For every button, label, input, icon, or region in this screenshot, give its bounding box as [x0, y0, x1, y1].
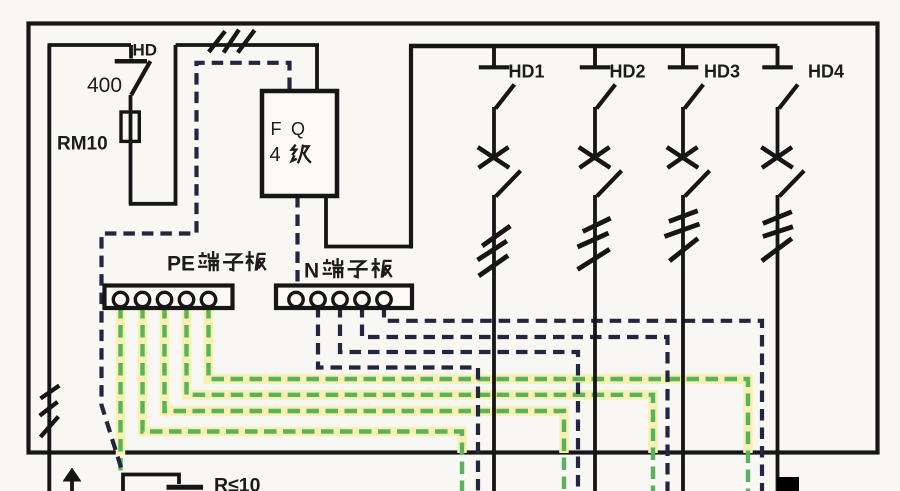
- svg-text:Q: Q: [291, 119, 305, 139]
- svg-text:4: 4: [270, 144, 281, 166]
- svg-text:400: 400: [87, 74, 122, 97]
- svg-text:HD1: HD1: [509, 61, 545, 81]
- svg-text:F: F: [271, 119, 282, 139]
- svg-text:R≤10: R≤10: [214, 475, 261, 491]
- svg-text:HD2: HD2: [610, 61, 646, 81]
- svg-text:RM10: RM10: [57, 134, 108, 155]
- svg-text:N: N: [304, 260, 319, 283]
- svg-text:PE: PE: [167, 253, 195, 276]
- svg-text:HD4: HD4: [808, 61, 844, 81]
- svg-text:HD: HD: [133, 41, 158, 60]
- svg-text:HD3: HD3: [704, 61, 740, 81]
